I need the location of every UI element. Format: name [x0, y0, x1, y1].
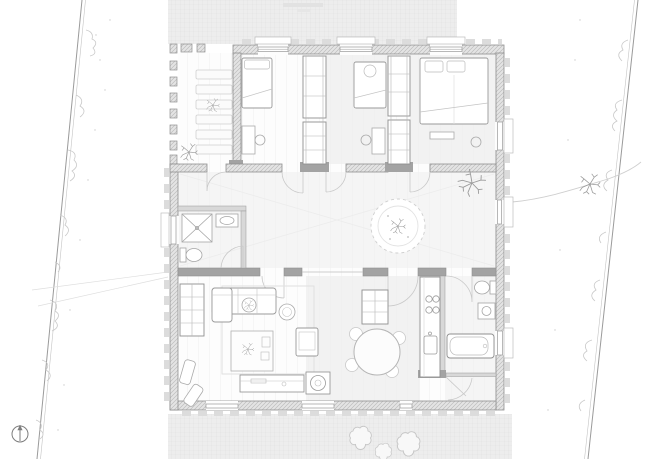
toilet — [490, 281, 496, 294]
bed — [354, 62, 386, 108]
kitchen-bath-wall — [440, 276, 445, 376]
tree-right-boundary — [580, 174, 600, 194]
bathtub — [447, 334, 494, 358]
site-boundary-left — [32, 0, 168, 459]
bench — [430, 132, 454, 139]
kitchen — [420, 277, 440, 377]
hall — [371, 199, 425, 253]
shower-room-wall — [178, 206, 246, 211]
desk — [372, 128, 385, 154]
lower-terrace — [168, 414, 512, 459]
porch-bedroom1-wall — [233, 53, 241, 164]
north-windows — [255, 37, 465, 55]
site-boundary-right — [547, 0, 638, 459]
washbasin — [216, 214, 238, 227]
kitchen-counter — [420, 277, 440, 377]
tv-bench — [240, 375, 304, 392]
rear-lobby-wall — [446, 373, 496, 377]
floor-plan-drawing — [0, 0, 650, 459]
washbasin — [478, 303, 495, 319]
coffee-table — [231, 331, 273, 371]
wardrobe-2 — [388, 56, 410, 164]
toilet — [180, 248, 186, 262]
round-chair — [279, 304, 295, 320]
east-wall — [496, 53, 504, 410]
west-window — [161, 213, 179, 247]
shower-room-wall — [241, 211, 246, 268]
wardrobe-1 — [303, 56, 326, 164]
speckles-right — [547, 19, 580, 410]
dining-table — [354, 329, 400, 375]
bed — [242, 58, 272, 108]
shrub-line-right — [579, 40, 628, 411]
west-wall — [170, 164, 178, 410]
tall-cabinet — [362, 290, 388, 324]
compass-north-icon — [12, 425, 28, 442]
fireplace-stove — [306, 372, 330, 394]
floor-plan-sheet — [0, 0, 650, 459]
garden-path — [512, 162, 641, 202]
desk — [242, 126, 255, 154]
